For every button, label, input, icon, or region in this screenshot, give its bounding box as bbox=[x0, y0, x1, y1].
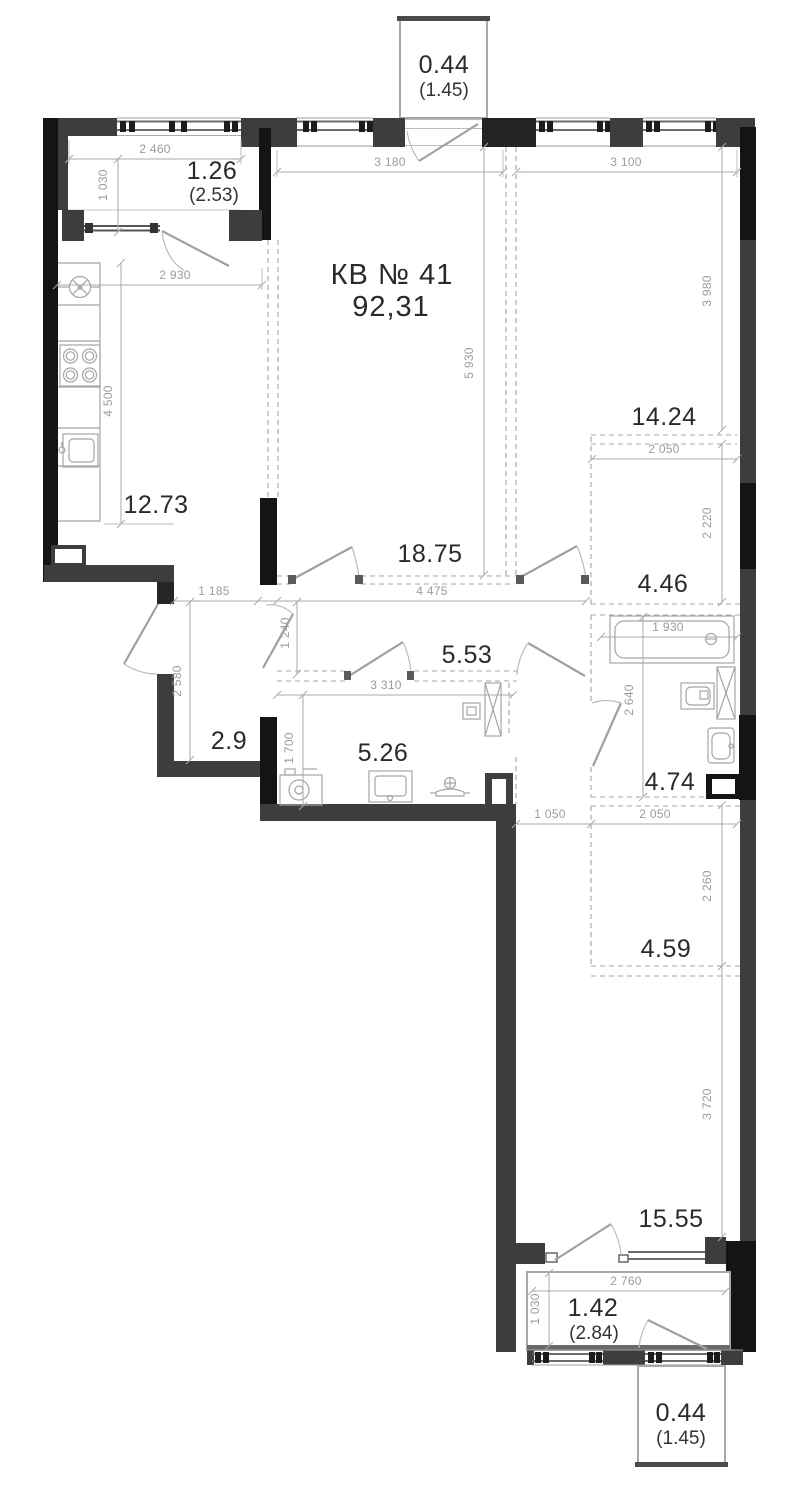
svg-text:2 050: 2 050 bbox=[648, 442, 680, 456]
svg-text:5.53: 5.53 bbox=[442, 641, 493, 669]
svg-text:1 700: 1 700 bbox=[282, 732, 296, 764]
svg-text:(1.45): (1.45) bbox=[419, 80, 469, 101]
svg-text:1 185: 1 185 bbox=[198, 584, 230, 598]
svg-text:1 930: 1 930 bbox=[652, 620, 684, 634]
svg-text:0.44: 0.44 bbox=[656, 1399, 707, 1427]
svg-text:2 760: 2 760 bbox=[610, 1274, 642, 1288]
svg-text:1 240: 1 240 bbox=[278, 617, 292, 649]
svg-text:3 310: 3 310 bbox=[370, 678, 402, 692]
svg-text:5.26: 5.26 bbox=[358, 739, 409, 767]
svg-text:КВ № 41: КВ № 41 bbox=[331, 259, 454, 291]
svg-text:4.59: 4.59 bbox=[641, 935, 692, 963]
svg-text:0.44: 0.44 bbox=[419, 51, 470, 79]
svg-text:1 030: 1 030 bbox=[96, 169, 110, 201]
svg-text:4 500: 4 500 bbox=[101, 385, 115, 417]
svg-text:2.9: 2.9 bbox=[211, 727, 247, 755]
svg-text:18.75: 18.75 bbox=[397, 540, 462, 568]
svg-text:2 580: 2 580 bbox=[170, 665, 184, 697]
svg-text:2 220: 2 220 bbox=[700, 507, 714, 539]
svg-text:1 030: 1 030 bbox=[528, 1293, 542, 1325]
svg-text:(2.84): (2.84) bbox=[569, 1323, 619, 1344]
svg-text:1.42: 1.42 bbox=[568, 1294, 619, 1322]
svg-text:3 180: 3 180 bbox=[374, 155, 406, 169]
svg-text:1.26: 1.26 bbox=[187, 157, 238, 185]
svg-text:14.24: 14.24 bbox=[631, 403, 696, 431]
svg-text:(2.53): (2.53) bbox=[189, 185, 239, 206]
svg-text:3 100: 3 100 bbox=[610, 155, 642, 169]
svg-text:15.55: 15.55 bbox=[638, 1205, 703, 1233]
svg-text:3 720: 3 720 bbox=[700, 1088, 714, 1120]
svg-text:92,31: 92,31 bbox=[352, 291, 430, 323]
svg-text:4 475: 4 475 bbox=[416, 584, 448, 598]
svg-text:2 050: 2 050 bbox=[639, 807, 671, 821]
svg-text:(1.45): (1.45) bbox=[656, 1428, 706, 1449]
svg-text:4.74: 4.74 bbox=[645, 768, 696, 796]
svg-text:4.46: 4.46 bbox=[638, 570, 689, 598]
svg-text:3 980: 3 980 bbox=[700, 275, 714, 307]
svg-text:2 640: 2 640 bbox=[622, 684, 636, 716]
svg-text:12.73: 12.73 bbox=[123, 491, 188, 519]
svg-text:1 050: 1 050 bbox=[534, 807, 566, 821]
svg-text:5 930: 5 930 bbox=[462, 347, 476, 379]
svg-text:2 930: 2 930 bbox=[159, 268, 191, 282]
svg-text:2 460: 2 460 bbox=[139, 142, 171, 156]
svg-text:2 260: 2 260 bbox=[700, 870, 714, 902]
